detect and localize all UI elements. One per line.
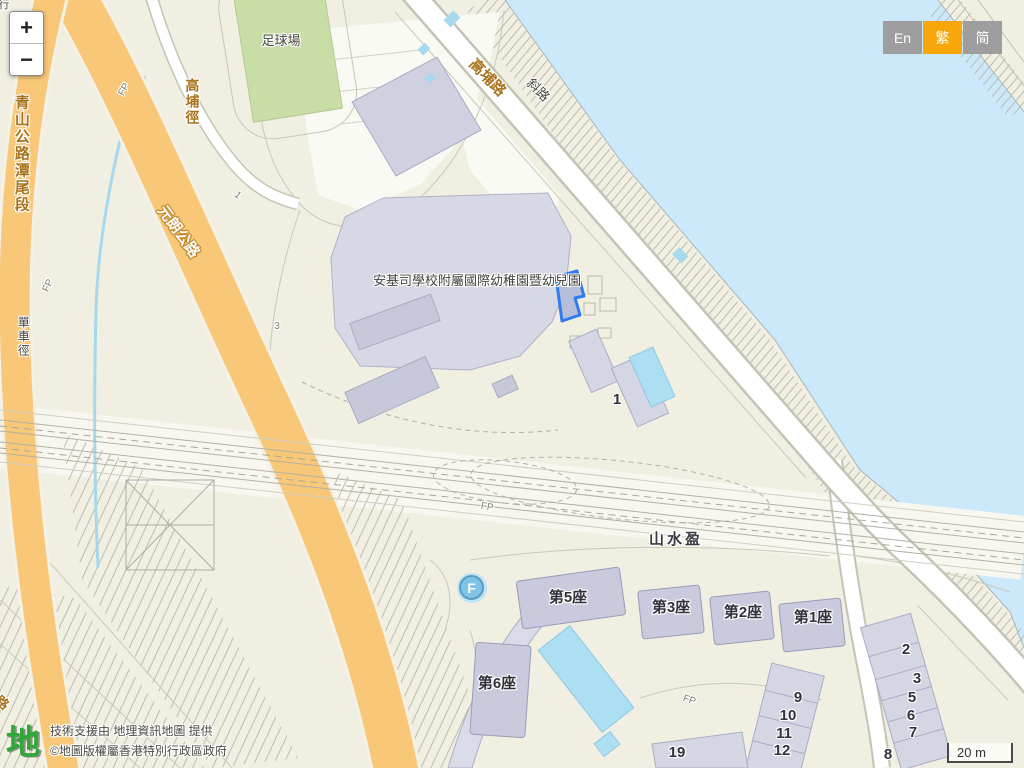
zoom-control: + −: [9, 11, 44, 76]
map-canvas: [0, 0, 1024, 768]
scale-bar: 20 m: [947, 743, 1013, 763]
lang-button-simplified[interactable]: 简: [963, 21, 1002, 54]
lang-button-traditional[interactable]: 繁: [923, 21, 962, 54]
scale-bar-label: 20 m: [957, 745, 986, 760]
zoom-out-button[interactable]: −: [10, 43, 43, 75]
attribution-line2: ©地圖版權屬香港特別行政區政府: [50, 742, 227, 759]
attribution-line1: 技術支援由 地理資訊地圖 提供: [50, 722, 227, 739]
geoinfo-logo: 地: [6, 722, 44, 764]
fountain-marker: F: [459, 575, 484, 600]
selected-building[interactable]: [556, 271, 584, 321]
map-viewport[interactable]: 足球場高埔路斜路青山公路潭尾段高埔徑元朗公路單車徑安基司學校附屬國際幼稚園暨幼兒…: [0, 0, 1024, 768]
fountain-letter: F: [467, 580, 476, 596]
lang-button-en[interactable]: En: [883, 21, 922, 54]
language-switcher: En 繁 简: [883, 21, 1002, 54]
attribution: 地 技術支援由 地理資訊地圖 提供 ©地圖版權屬香港特別行政區政府: [6, 722, 227, 764]
zoom-in-button[interactable]: +: [10, 12, 43, 43]
